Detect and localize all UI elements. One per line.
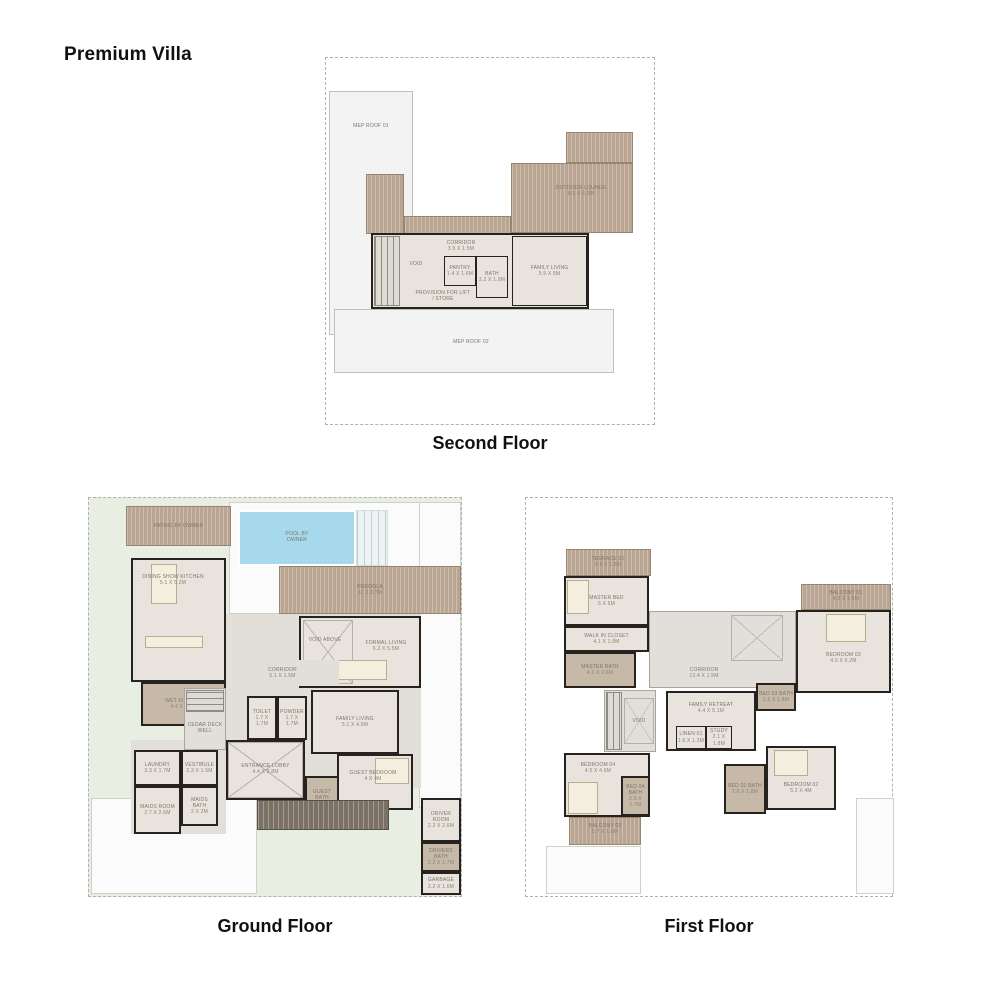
family-retreat-label-dims: 4.4 X 5.1M (698, 708, 724, 714)
second-floor-stair-treads (374, 236, 400, 306)
powder-dims: 1.7 X 1.7M (280, 715, 305, 728)
second-floor-outdoor-lounge-label: OUTDOOR LOUNGE8.5 X 6.2M (534, 182, 628, 200)
ground-floor-stair-treads (186, 690, 224, 712)
second-floor-caption: Second Floor (325, 433, 655, 454)
driver-room-label: DRIVER ROOM (424, 811, 459, 824)
ground-floor-maids-room: MAIDS ROOM2.7 X 2.6M (134, 786, 181, 834)
maids-bath-dims: 2 X 2M (191, 809, 208, 815)
ground-floor-laundry: LAUNDRY3.3 X 1.7M (134, 750, 181, 786)
vestibule-dims: 2.3 X 1.5M (186, 768, 212, 774)
ground-floor-maids-bath: MAIDS BATH2 X 2M (181, 786, 218, 826)
first-floor-patio-left (546, 846, 641, 894)
ground-floor-pergola: PERGOLA11 X 3.7M (279, 566, 461, 614)
second-floor-deck-side (366, 174, 404, 234)
second-floor-mep-roof-01-label: MEP ROOF 01 (334, 120, 408, 132)
first-floor-stair-void: VOID (624, 698, 654, 744)
second-floor-outdoor-lounge-upper (566, 132, 633, 163)
pantry-dims: 1.4 X 1.6M (447, 271, 473, 277)
first-floor-caption: First Floor (525, 916, 893, 937)
void-above-label-label: VOID ABOVE (309, 637, 342, 643)
bath-dims: 3.2 X 1.9M (479, 277, 505, 283)
driver-room-dims: 2.2 X 2.6M (428, 823, 454, 829)
bed-04-bath-dims: 2.6 X 1.7M (624, 796, 648, 809)
first-floor-bed-03-bath: BED 03 BATH2.6 X 1.8M (756, 683, 796, 711)
drivers-bath-dims: 2.2 X 1.7M (428, 860, 454, 866)
dining-kitchen-label-dims: 5.1 X 5.2M (160, 580, 186, 586)
toilet-dims: 1.7 X 1.7M (250, 715, 275, 728)
second-floor-corridor-label: CORRIDOR3.9 X 1.5M (431, 238, 491, 254)
second-floor-plan: MEP ROOF 01OUTDOOR LOUNGE8.5 X 6.2MVOIDC… (325, 57, 655, 425)
ground-floor-pool-steps (356, 510, 388, 566)
balcony-02-label-dims: 5.7 X 1.6M (592, 829, 618, 835)
ground-floor-void-above-label: VOID ABOVE (303, 632, 347, 648)
corridor-label-dims: 13.4 X 1.5M (689, 673, 718, 679)
first-floor-balcony-02-label: BALCONY 025.7 X 1.6M (576, 819, 634, 839)
first-floor-corridor-label: CORRIDOR13.4 X 1.5M (664, 665, 744, 681)
ground-floor-entrance-walk (257, 800, 389, 830)
ground-floor-powder: POWDER1.7 X 1.7M (277, 696, 307, 740)
family-living-dims: 5.9 X 5M (539, 271, 561, 277)
garbage-dims: 2.2 X 1.6M (428, 884, 454, 890)
bed-04-bath-label: BED 04 BATH (624, 784, 648, 797)
first-floor-bedroom-02-label: BEDROOM 025.2 X 4M (771, 778, 831, 798)
corridor-label-dims: 3.9 X 1.5M (448, 246, 474, 252)
first-floor-study: STUDY2.1 X 1.8M (706, 726, 732, 749)
void-label-label: VOID (409, 261, 422, 267)
page-title: Premium Villa (64, 44, 192, 66)
first-floor-master-bath: MASTER BATH4.1 X 2.6M (564, 652, 636, 688)
linen-01-dims: 1.6 X 1.2M (678, 738, 704, 744)
second-floor-family-living: FAMILY LIVING5.9 X 5M (512, 236, 587, 306)
ground-floor-paving-right (419, 502, 461, 808)
ground-floor-pool-label: POOL BY OWNER (275, 526, 319, 548)
bedroom-04-label-dims: 4.5 X 4.6M (585, 768, 611, 774)
walk-in-closet-dims: 4.1 X 1.8M (593, 639, 619, 645)
ground-floor-garbage: GARBAGE2.2 X 1.6M (421, 872, 461, 895)
cedar-deck-label-label: CEDAR DECK WELL (186, 722, 224, 735)
ground-floor-guest-bedroom-label: GUEST BEDROOM4 X 4M (341, 766, 405, 786)
first-floor-plan: TERRACE 015.9 X 1.8MMASTER BED6 X 5MWALK… (525, 497, 893, 897)
pergola-dims: 11 X 3.7M (358, 590, 382, 596)
ground-floor-kitchen-island (145, 636, 203, 648)
ground-floor-cedar-deck-label: CEDAR DECK WELL (185, 718, 225, 738)
formal-living-label-dims: 6.2 X 5.5M (373, 646, 399, 652)
drivers-bath-label: DRIVERS BATH (424, 848, 459, 861)
balcony-01-label-dims: 4.5 X 1.6M (833, 596, 859, 602)
stair-void-label: VOID (632, 718, 645, 724)
pool-label-label: POOL BY OWNER (276, 531, 318, 544)
ground-floor-plan: POOL BY OWNERPAVING BY OWNERPERGOLA11 X … (88, 497, 462, 897)
maids-bath-label: MAIDS BATH (184, 797, 216, 810)
first-floor-linen-01: LINEN 011.6 X 1.2M (676, 726, 706, 749)
ground-floor-toilet: TOILET1.7 X 1.7M (247, 696, 277, 740)
lobby-label-dims: 4.4 X 3.8M (252, 769, 278, 775)
master-bed-dims: 6 X 5M (598, 601, 615, 607)
first-floor-bedroom-03-bed (826, 614, 866, 642)
first-floor-void-above (731, 615, 783, 661)
ground-floor-corridor: CORRIDOR5.1 X 1.5M (226, 660, 339, 686)
first-floor-bedroom-04-label: BEDROOM 044.5 X 4.6M (570, 758, 626, 778)
first-floor-bedroom-02-bed (774, 750, 808, 776)
second-floor-deck-strip (404, 216, 511, 234)
mep-roof-01-label-label: MEP ROOF 01 (353, 123, 389, 129)
first-floor-stair-treads (606, 692, 622, 750)
mep-roof-02-label-label: MEP ROOF 02 (453, 339, 489, 345)
first-floor-bed-04-bath: BED 04 BATH2.6 X 1.7M (621, 776, 650, 816)
maids-room-dims: 2.7 X 2.6M (144, 810, 170, 816)
first-floor-bedroom-03-label: BEDROOM 034.5 X 5.2M (811, 648, 876, 668)
bedroom-03-label-dims: 4.5 X 5.2M (830, 658, 856, 664)
ground-floor-caption: Ground Floor (88, 916, 462, 937)
first-floor-terrace-01-label: TERRACE 015.9 X 1.8M (578, 552, 638, 572)
first-floor-bedroom-04-bed (568, 782, 598, 814)
guest-bedroom-label-dims: 4 X 4M (364, 776, 381, 782)
ground-floor-formal-living-label: FORMAL LIVING6.2 X 5.5M (357, 636, 415, 656)
second-floor-provision-label: PROVISION FOR LIFT / STORE (414, 286, 472, 306)
bed-03-bath-dims: 2.6 X 1.8M (763, 697, 789, 703)
bed-02-bath-dims: 2.6 X 1.8M (732, 789, 758, 795)
ground-floor-family-living: FAMILY LIVING5.1 X 4.5M (311, 690, 399, 754)
master-bath-dims: 4.1 X 2.6M (587, 670, 613, 676)
corridor-dims: 5.1 X 1.5M (269, 673, 295, 679)
second-floor-mep-roof-02-label: MEP ROOF 02 (431, 336, 511, 348)
first-floor-family-retreat-label: FAMILY RETREAT4.4 X 5.1M (676, 698, 746, 718)
second-floor-void-label: VOID (400, 258, 432, 270)
second-floor-bath: BATH3.2 X 1.9M (476, 256, 508, 298)
family-living-dims: 5.1 X 4.5M (342, 722, 368, 728)
first-floor-master-bed-furn (567, 580, 589, 614)
first-floor-bed-02-bath: BED 02 BATH2.6 X 1.8M (724, 764, 766, 814)
first-floor-walk-in-closet: WALK IN CLOSET4.1 X 1.8M (564, 626, 649, 652)
provision-label-label: PROVISION FOR LIFT / STORE (415, 290, 471, 303)
ground-floor-lobby-label: ENTRANCE LOBBY4.4 X 3.8M (229, 758, 302, 780)
terrace-01-label-dims: 5.9 X 1.8M (595, 562, 621, 568)
laundry-dims: 3.3 X 1.7M (144, 768, 170, 774)
ground-floor-paving-by-owner: PAVING BY OWNER (126, 506, 231, 546)
first-floor-patio-right (856, 798, 894, 894)
ground-floor-drivers-bath: DRIVERS BATH2.2 X 1.7M (421, 842, 461, 872)
paving-by-owner-label: PAVING BY OWNER (154, 523, 204, 529)
second-floor-pantry: PANTRY1.4 X 1.6M (444, 256, 476, 286)
ground-floor-dining-kitchen-label: DINING SHOW KITCHEN5.1 X 5.2M (139, 568, 207, 592)
ground-floor-driver-room: DRIVER ROOM2.2 X 2.6M (421, 798, 461, 842)
first-floor-balcony-01-label: BALCONY 014.5 X 1.6M (818, 586, 874, 606)
ground-floor-vestibule: VESTIBULE2.3 X 1.5M (181, 750, 218, 786)
bedroom-02-label-dims: 5.2 X 4M (790, 788, 812, 794)
study-dims: 2.1 X 1.8M (707, 734, 730, 747)
outdoor-lounge-label-dims: 8.5 X 6.2M (568, 191, 594, 197)
